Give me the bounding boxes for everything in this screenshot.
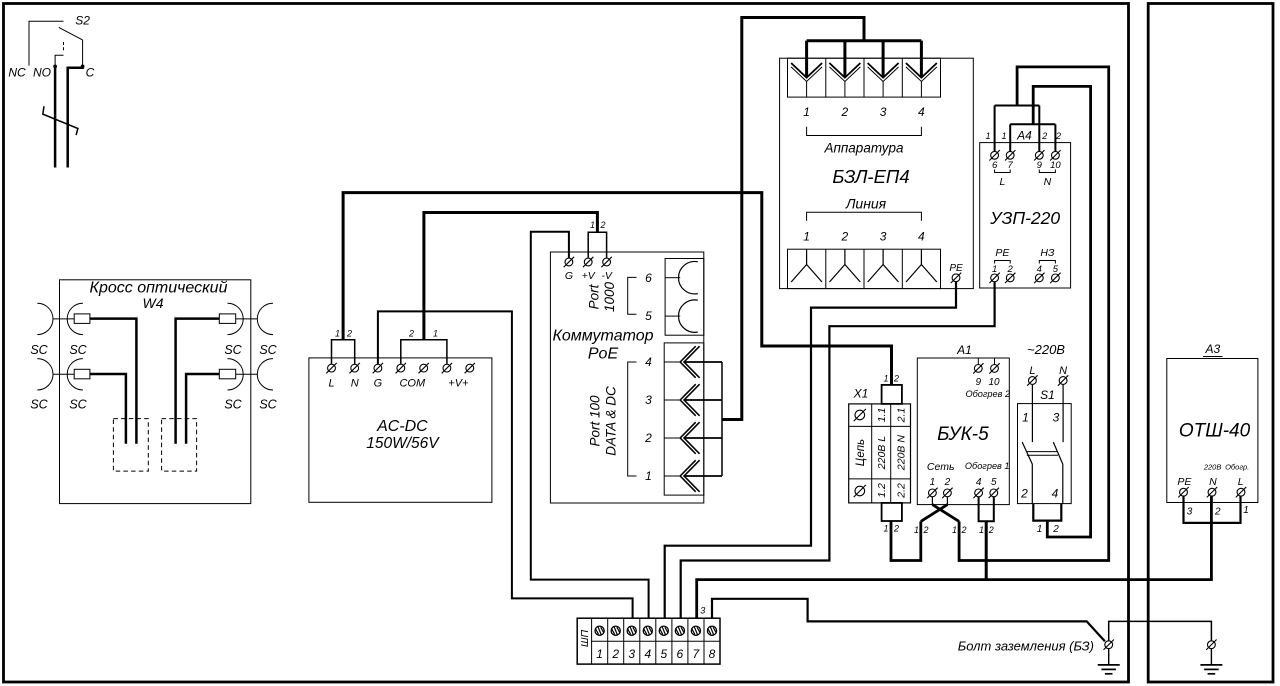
svg-text:Аппаратура: Аппаратура [823,141,904,156]
svg-text:N: N [1209,476,1217,488]
svg-text:1: 1 [930,477,936,488]
svg-text:PoE: PoE [588,346,619,363]
svg-text:G: G [565,270,573,282]
svg-text:3: 3 [1053,411,1060,425]
svg-text:3: 3 [880,105,887,119]
svg-text:220В N: 220В N [895,435,907,471]
svg-text:150W/56V: 150W/56V [366,435,440,452]
svg-text:1: 1 [1037,524,1043,535]
svg-text:2: 2 [922,525,928,535]
svg-text:5: 5 [660,647,667,661]
svg-text:2: 2 [644,431,652,445]
svg-text:220В L: 220В L [876,436,888,470]
svg-text:PE: PE [1177,476,1192,488]
svg-text:Коммутатор: Коммутатор [552,328,653,345]
svg-text:1.2: 1.2 [876,483,888,498]
svg-text:G: G [374,378,383,390]
svg-text:5: 5 [645,309,652,323]
svg-text:1: 1 [952,525,957,535]
svg-text:4: 4 [644,647,651,661]
svg-text:9: 9 [1037,160,1043,171]
svg-text:Обогрев 1: Обогрев 1 [965,461,1010,471]
svg-text:1: 1 [433,329,438,339]
svg-text:Port 100: Port 100 [588,395,603,447]
svg-text:1: 1 [1001,131,1006,141]
svg-text:Обогр.: Обогр. [1225,463,1249,472]
svg-text:1: 1 [1243,505,1249,516]
svg-text:БУК-5: БУК-5 [937,424,989,445]
svg-text:10: 10 [988,377,1000,388]
svg-text:SC: SC [30,343,48,357]
svg-text:1: 1 [335,329,340,339]
svg-text:2: 2 [1052,524,1059,535]
svg-text:L: L [1029,365,1035,377]
svg-text:1: 1 [596,647,603,661]
svg-text:4: 4 [918,230,925,244]
svg-text:7: 7 [1008,160,1014,171]
svg-text:1: 1 [1022,411,1029,425]
svg-text:DATA & DC: DATA & DC [604,386,619,456]
svg-text:2: 2 [611,647,619,661]
svg-text:AC-DC: AC-DC [376,418,428,435]
svg-text:N: N [1059,365,1067,377]
svg-text:COM: COM [399,378,426,390]
svg-text:+V: +V [582,270,596,282]
svg-text:10: 10 [1050,160,1061,171]
svg-text:SC: SC [69,343,87,357]
svg-text:NO: NO [33,66,51,80]
svg-text:SC: SC [69,398,87,412]
svg-text:SC: SC [224,398,242,412]
svg-text:N: N [1044,176,1052,188]
svg-text:8: 8 [709,647,716,661]
svg-text:5: 5 [991,477,997,488]
svg-text:S1: S1 [1040,388,1055,402]
svg-text:220В: 220В [1203,463,1222,472]
svg-text:1: 1 [985,131,990,141]
svg-text:W4: W4 [143,295,164,311]
svg-text:L: L [328,378,334,390]
svg-text:Болт заземления (БЗ): Болт заземления (БЗ) [958,639,1094,654]
svg-text:SC: SC [259,398,277,412]
svg-text:6: 6 [645,271,652,285]
svg-text:УЗП-220: УЗП-220 [989,208,1060,228]
svg-text:БЗЛ-ЕП4: БЗЛ-ЕП4 [832,166,909,187]
svg-text:3: 3 [628,647,635,661]
svg-text:1: 1 [914,525,919,535]
svg-text:9: 9 [976,377,982,388]
svg-text:2: 2 [893,374,899,384]
svg-text:Цепь: Цепь [855,439,867,466]
svg-text:L: L [999,176,1005,188]
svg-text:SC: SC [259,343,277,357]
svg-text:-V: -V [601,270,612,282]
svg-text:C: C [86,66,95,80]
svg-text:4: 4 [918,105,925,119]
svg-text:2: 2 [346,329,352,339]
svg-text:ШП: ШП [579,629,591,647]
svg-text:6: 6 [992,160,998,171]
svg-text:A4: A4 [1016,129,1032,143]
svg-text:1000: 1000 [602,281,617,312]
svg-text:2: 2 [841,105,849,119]
svg-text:Port: Port [587,283,602,309]
svg-text:~220В: ~220В [1027,342,1065,357]
svg-text:X1: X1 [853,387,869,401]
svg-text:6: 6 [677,647,684,661]
svg-text:ОТШ-40: ОТШ-40 [1179,421,1251,442]
svg-text:NC: NC [8,66,26,80]
svg-text:2: 2 [599,220,605,230]
svg-text:1: 1 [883,374,888,384]
svg-text:S2: S2 [75,14,90,28]
svg-text:2: 2 [1041,131,1047,141]
svg-text:A1: A1 [956,343,972,357]
svg-text:2.2: 2.2 [895,483,907,499]
svg-text:Обогрев 2: Обогрев 2 [965,389,1010,399]
svg-text:N: N [351,378,359,390]
svg-text:3: 3 [700,606,705,616]
svg-text:2: 2 [1020,487,1028,501]
svg-text:1.1: 1.1 [876,408,888,423]
svg-text:Кросс оптический: Кросс оптический [90,280,228,297]
svg-text:2.1: 2.1 [895,408,907,424]
svg-text:1: 1 [979,525,984,535]
svg-text:1: 1 [883,524,888,534]
svg-text:2: 2 [944,477,951,488]
svg-text:SC: SC [224,343,242,357]
svg-text:2: 2 [1214,507,1221,518]
svg-text:4: 4 [976,477,982,488]
svg-text:Линия: Линия [845,196,887,212]
svg-text:2: 2 [841,230,849,244]
svg-text:1: 1 [645,469,652,483]
svg-text:2: 2 [893,524,899,534]
svg-text:3: 3 [645,393,652,407]
svg-text:4: 4 [645,355,652,369]
svg-text:L: L [1238,476,1244,488]
svg-text:НЗ: НЗ [1040,247,1055,259]
svg-text:PE: PE [995,247,1010,259]
svg-text:1: 1 [590,220,595,230]
svg-text:+V+: +V+ [448,378,469,390]
svg-text:2: 2 [408,329,414,339]
svg-text:1: 1 [803,105,810,119]
svg-text:2: 2 [960,525,966,535]
svg-text:SC: SC [30,398,48,412]
svg-text:3: 3 [880,230,887,244]
svg-text:2: 2 [988,525,994,535]
svg-text:3: 3 [1187,507,1193,518]
svg-text:Сеть: Сеть [927,461,955,473]
svg-text:A3: A3 [1204,342,1220,356]
svg-text:1: 1 [803,230,810,244]
svg-text:4: 4 [1052,487,1059,501]
